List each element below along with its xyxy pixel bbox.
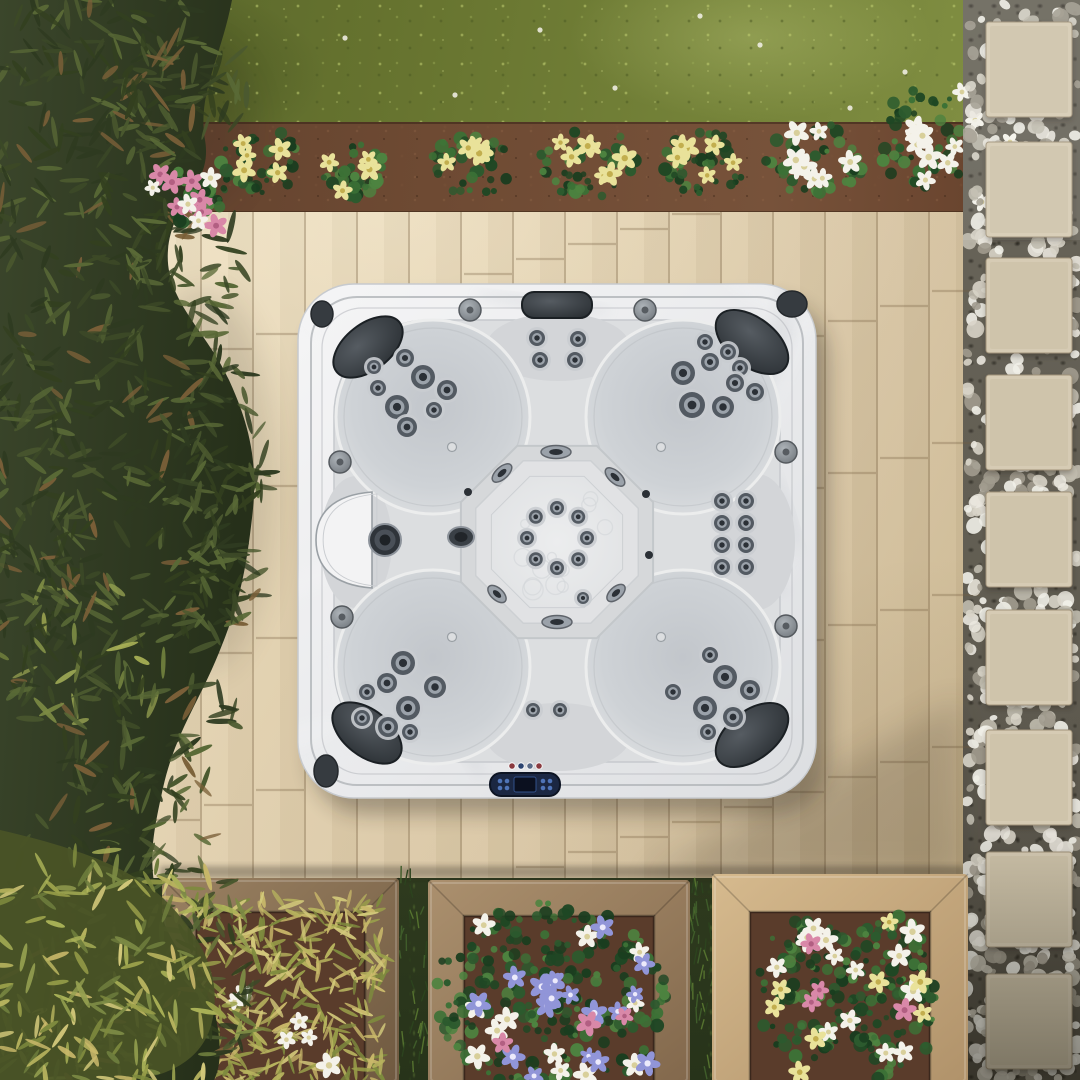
stepping-stone — [986, 258, 1072, 356]
grass-gap — [689, 878, 714, 1079]
flower-clump — [429, 132, 512, 196]
corner-speaker-disc — [314, 755, 338, 787]
panel-button — [498, 779, 503, 784]
panel-button — [505, 779, 510, 784]
panel-button — [541, 779, 546, 784]
panel-button — [541, 786, 546, 791]
stepping-stone — [986, 492, 1072, 590]
hot-tub — [242, 253, 828, 814]
grass-gap — [396, 866, 429, 1074]
backyard-scene — [0, 0, 1080, 1080]
flower-clump — [658, 128, 744, 196]
panel-button — [548, 779, 553, 784]
planter-middle — [428, 880, 690, 1080]
stepping-stone — [986, 610, 1072, 708]
flower-clump — [319, 142, 388, 204]
headrest-pillow-top — [522, 292, 592, 318]
planter-right — [712, 874, 968, 1080]
corner-speaker-disc — [311, 301, 333, 327]
stepping-stone — [986, 730, 1072, 828]
flower-clump — [761, 120, 867, 199]
panel-button — [548, 786, 553, 791]
corner-speaker-disc — [777, 291, 807, 317]
flower-clump — [536, 127, 641, 201]
scene-art — [0, 0, 1080, 1080]
indicator-dot — [509, 763, 515, 769]
flower-clump — [877, 86, 966, 192]
indicator-dot — [518, 763, 524, 769]
stepping-stone — [986, 375, 1072, 473]
indicator-dot — [536, 763, 542, 769]
indicator-dot — [527, 763, 533, 769]
panel-button — [498, 786, 503, 791]
panel-button — [505, 786, 510, 791]
planter-boxes — [162, 866, 968, 1080]
panel-screen — [514, 777, 536, 792]
flower-bed-plants — [152, 13, 1020, 222]
